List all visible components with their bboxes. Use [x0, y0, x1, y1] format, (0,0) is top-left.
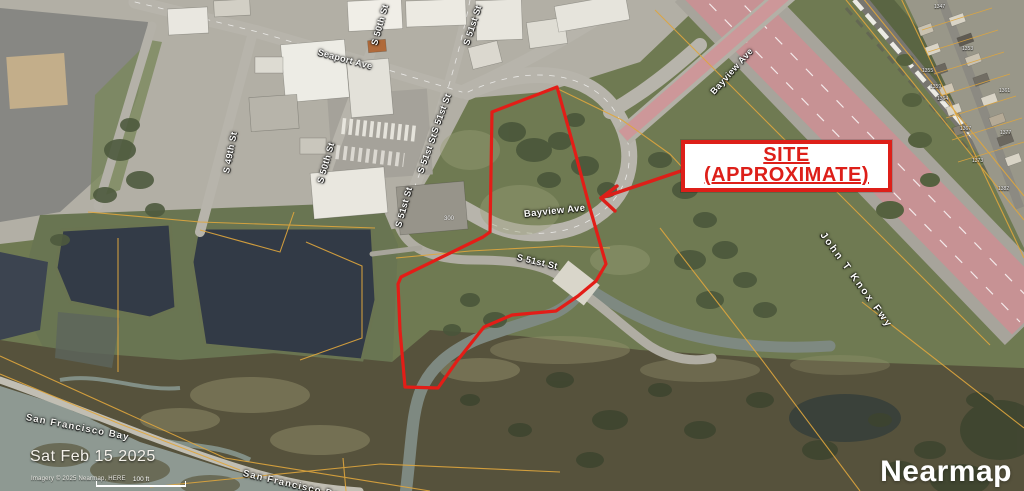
parcel-number: 1347 — [934, 4, 945, 10]
site-annotation-line2: (APPROXIMATE) — [685, 165, 888, 185]
map-scale-bar: 100 ft — [96, 472, 186, 487]
building-number: 300 — [444, 216, 454, 222]
nearmap-logo: Nearmap — [880, 455, 1012, 489]
parcel-number: 1353 — [962, 46, 973, 52]
parcel-number: 1364 — [937, 96, 948, 102]
parcel-number: 1367 — [960, 126, 971, 132]
scale-bar-bracket — [96, 481, 186, 487]
parcel-number: 1361 — [999, 88, 1010, 94]
parcel-number: 1355 — [922, 68, 933, 74]
aerial-imagery-canvas[interactable] — [0, 0, 1024, 491]
parcel-number: 1373 — [972, 158, 983, 164]
aerial-map-view: Seaport Ave S 49th St S 50th St S 50th S… — [0, 0, 1024, 491]
parcel-number: 1382 — [998, 186, 1009, 192]
parcel-number: 1377 — [1000, 130, 1011, 136]
imagery-date-label: Sat Feb 15 2025 — [30, 448, 156, 466]
parcel-number: 1359 — [930, 84, 941, 90]
site-annotation-line1: SITE — [685, 145, 888, 165]
site-annotation-callout: SITE (APPROXIMATE) — [681, 140, 892, 192]
